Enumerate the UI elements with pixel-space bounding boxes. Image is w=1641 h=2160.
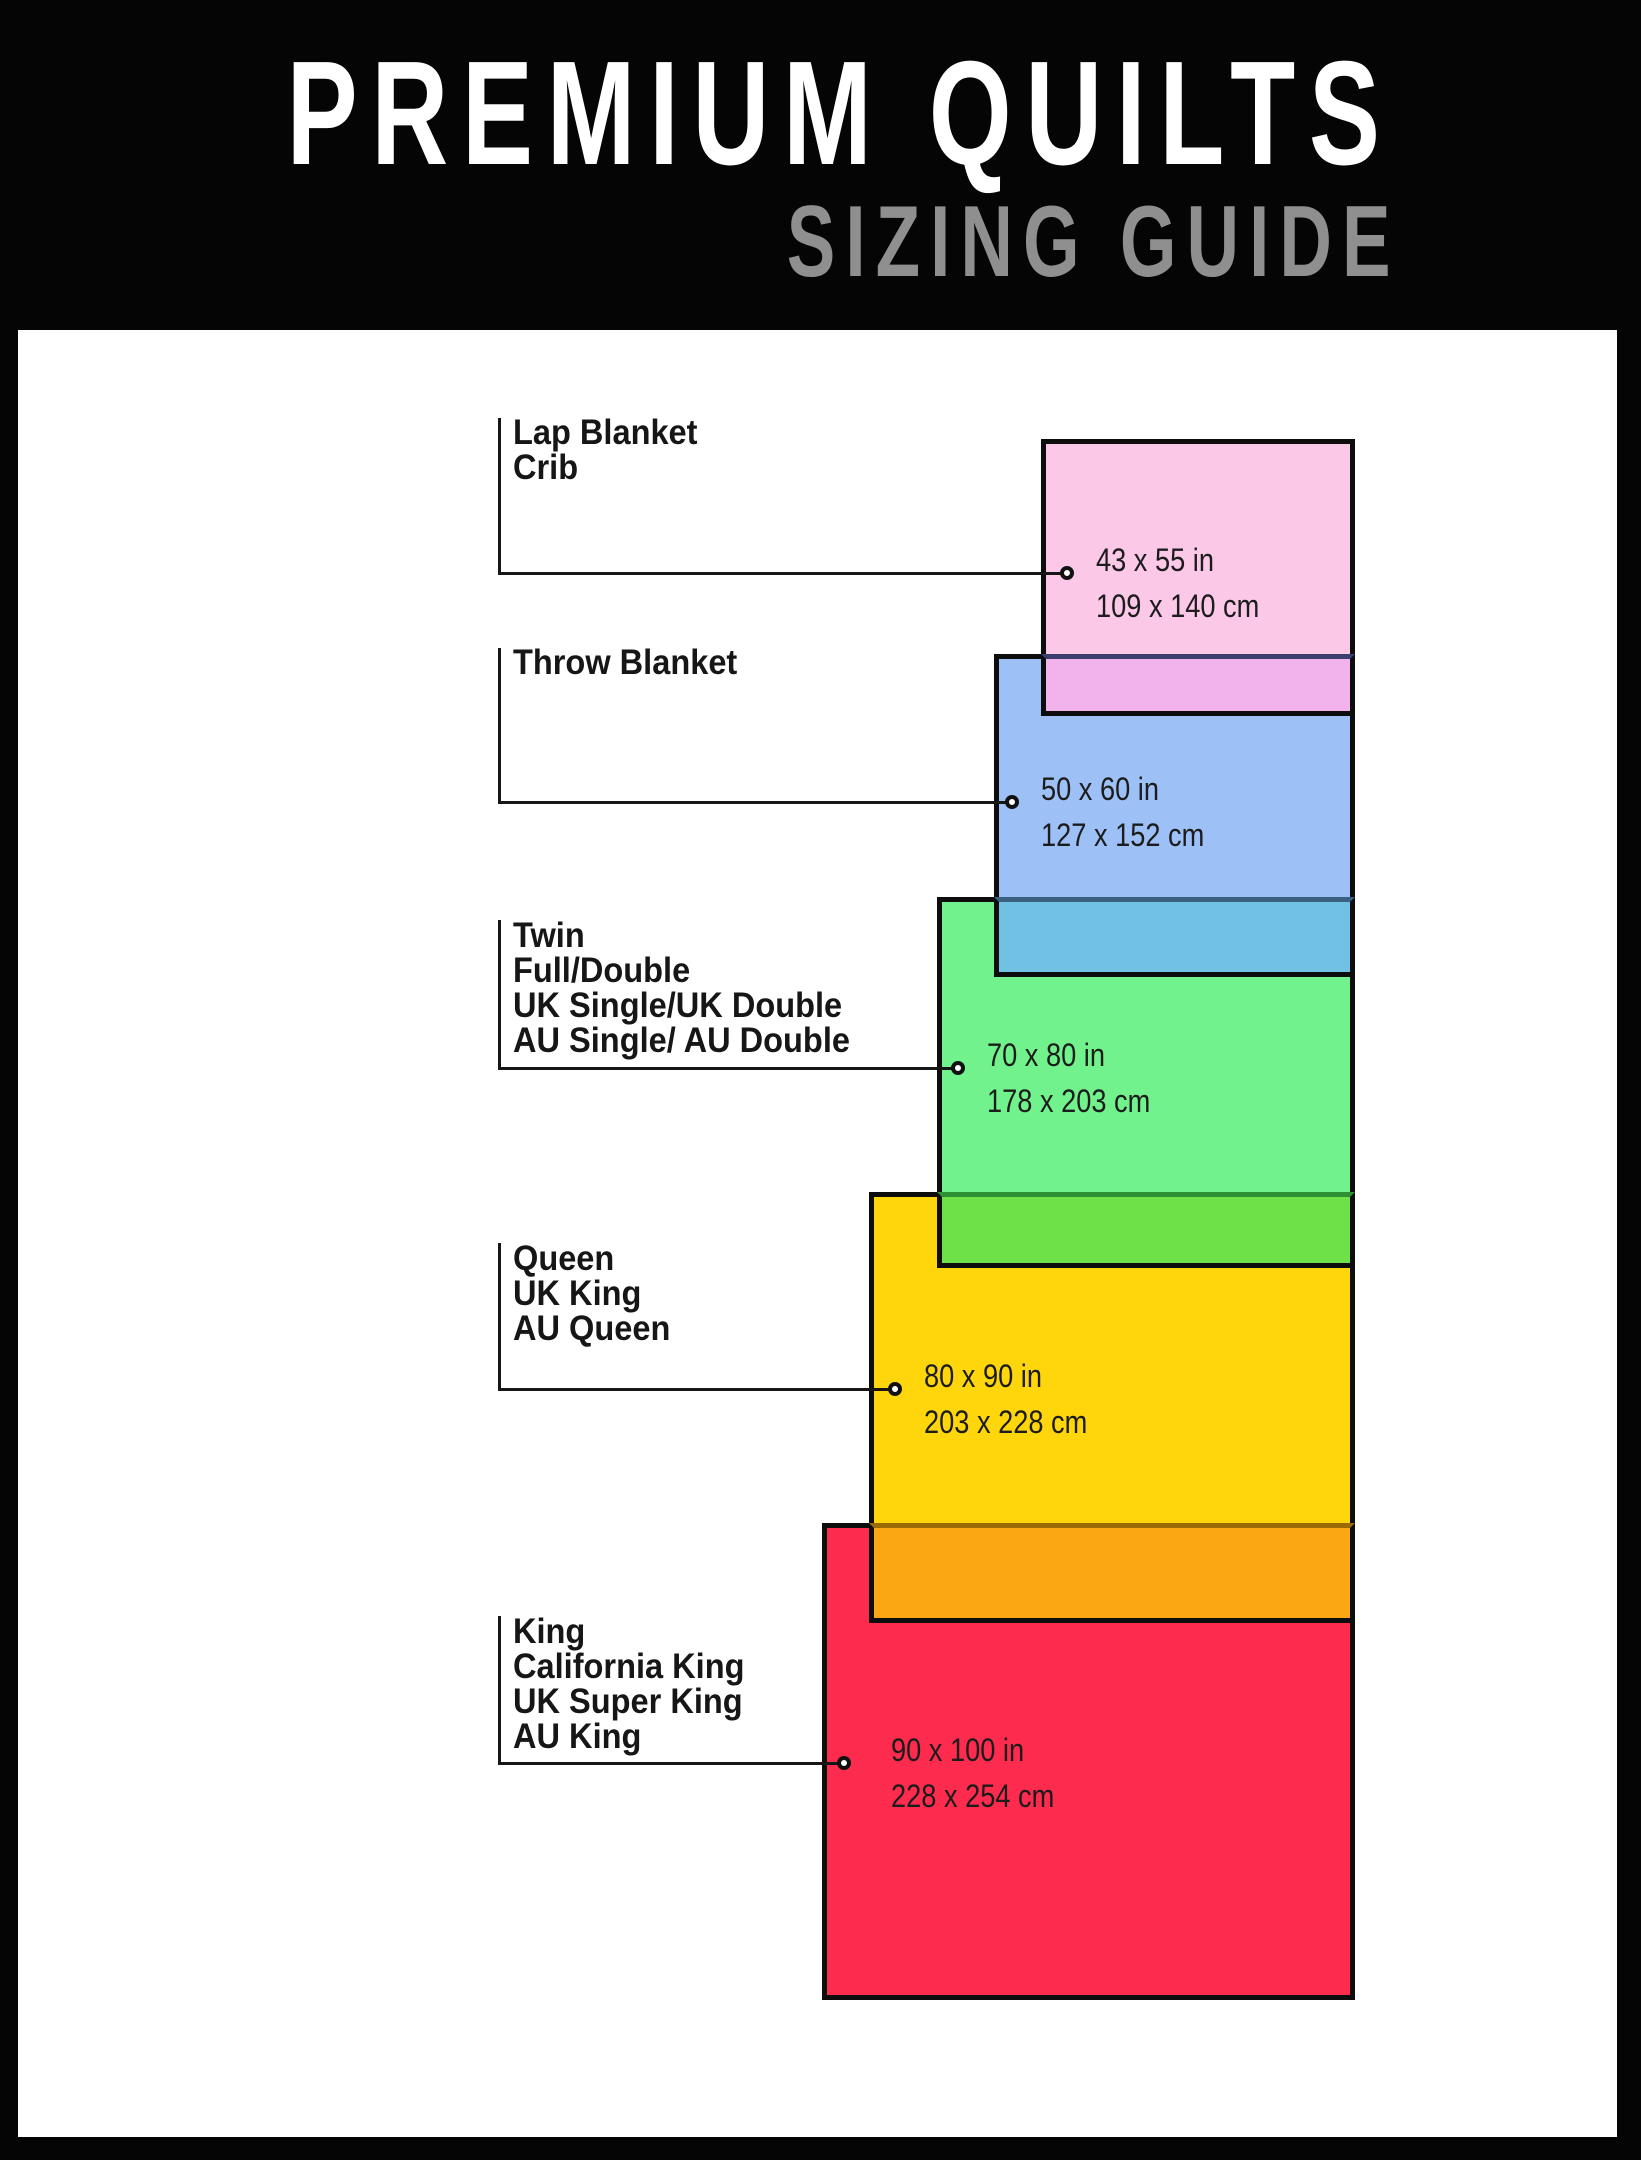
connector-horizontal-line-lap [498, 572, 1067, 575]
measurements-twin-full-double: 70 x 80 in 178 x 203 cm [987, 1032, 1150, 1124]
label-line: Crib [513, 450, 698, 485]
overlap-band-twin-queen [937, 1192, 1355, 1268]
measurement-cm: 203 x 228 cm [924, 1399, 1087, 1445]
connector-dot-queen [888, 1382, 902, 1396]
connector-dot-throw [1005, 795, 1019, 809]
measurements-queen: 80 x 90 in 203 x 228 cm [924, 1353, 1087, 1445]
size-label-throw-blanket: Throw Blanket [513, 645, 737, 680]
size-label-king: King California King UK Super King AU Ki… [513, 1614, 744, 1754]
measurement-inches: 70 x 80 in [987, 1032, 1150, 1078]
label-line: UK Single/UK Double [513, 988, 850, 1023]
measurement-inches: 43 x 55 in [1096, 537, 1259, 583]
label-line: Full/Double [513, 953, 850, 988]
label-line: UK King [513, 1276, 670, 1311]
page-title: PREMIUM QUILTS [287, 40, 1394, 188]
label-line: Lap Blanket [513, 415, 698, 450]
measurement-inches: 50 x 60 in [1041, 766, 1204, 812]
diagram-canvas: Lap Blanket Crib Throw Blanket Twin Full… [18, 330, 1617, 2137]
connector-dot-king [837, 1756, 851, 1770]
measurement-cm: 228 x 254 cm [891, 1773, 1054, 1819]
connector-vertical-line-king [498, 1616, 501, 1765]
measurements-lap-blanket-crib: 43 x 55 in 109 x 140 cm [1096, 537, 1259, 629]
measurements-king: 90 x 100 in 228 x 254 cm [891, 1727, 1054, 1819]
connector-dot-lap [1060, 566, 1074, 580]
label-line: AU Single/ AU Double [513, 1023, 850, 1058]
page-subtitle: SIZING GUIDE [787, 192, 1401, 293]
connector-vertical-line-throw [498, 648, 501, 804]
label-line: California King [513, 1649, 744, 1684]
overlap-band-queen-king [869, 1523, 1355, 1623]
sizing-guide-page: PREMIUM QUILTS SIZING GUIDE [0, 0, 1641, 2160]
overlap-band-lap-throw [1041, 654, 1355, 716]
connector-horizontal-line-queen [498, 1388, 895, 1391]
label-line: AU King [513, 1719, 744, 1754]
connector-vertical-line-twin [498, 920, 501, 1070]
connector-vertical-line-queen [498, 1243, 501, 1391]
label-line: UK Super King [513, 1684, 744, 1719]
measurement-inches: 80 x 90 in [924, 1353, 1087, 1399]
connector-dot-twin [951, 1061, 965, 1075]
label-line: AU Queen [513, 1311, 670, 1346]
connector-vertical-line-lap [498, 418, 501, 575]
header-banner: PREMIUM QUILTS SIZING GUIDE [0, 0, 1641, 330]
measurement-cm: 109 x 140 cm [1096, 583, 1259, 629]
label-line: Throw Blanket [513, 645, 737, 680]
measurements-throw-blanket: 50 x 60 in 127 x 152 cm [1041, 766, 1204, 858]
connector-horizontal-line-twin [498, 1067, 958, 1070]
label-line: Queen [513, 1241, 670, 1276]
measurement-cm: 178 x 203 cm [987, 1078, 1150, 1124]
size-label-lap-blanket-crib: Lap Blanket Crib [513, 415, 698, 485]
connector-horizontal-line-king [498, 1762, 844, 1765]
connector-horizontal-line-throw [498, 801, 1012, 804]
label-line: Twin [513, 918, 850, 953]
size-label-queen: Queen UK King AU Queen [513, 1241, 670, 1346]
label-line: King [513, 1614, 744, 1649]
overlap-band-throw-twin [994, 897, 1355, 977]
measurement-inches: 90 x 100 in [891, 1727, 1054, 1773]
measurement-cm: 127 x 152 cm [1041, 812, 1204, 858]
size-label-twin-full-double: Twin Full/Double UK Single/UK Double AU … [513, 918, 850, 1058]
